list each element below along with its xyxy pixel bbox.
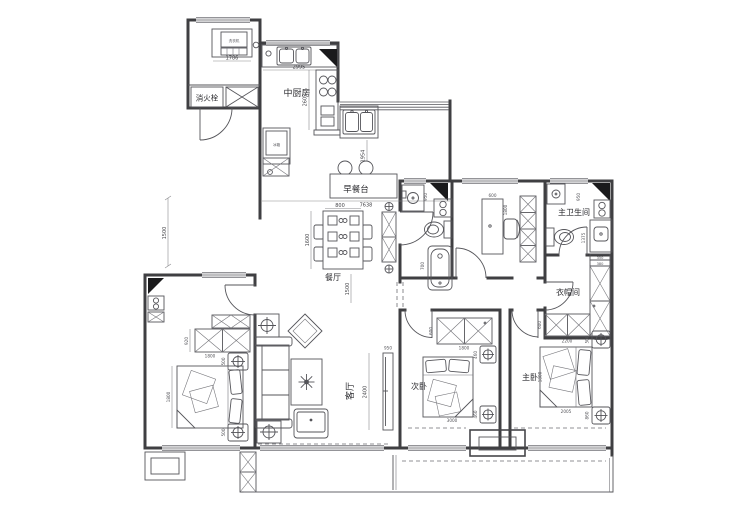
balcony-column [240,452,256,492]
tv-cabinet [383,353,393,430]
left-bedroom: 920 1800 500 1800 500 [148,296,250,441]
living-label: 客厅 [344,382,356,400]
wardrobe-column [590,266,610,336]
dim-master-nightstand-a: 500 [585,335,590,343]
utility-room: 洗衣机 1786 消火栓 [191,29,259,107]
dim-left-offset: 1500 [162,227,168,240]
dim-second-wardrobe-width: 1800 [459,346,470,351]
dim-bath-tub: 700 [420,262,425,270]
dim-left-wardrobe-width: 1800 [205,354,216,359]
dim-left-bed-length: 1800 [166,391,171,402]
floor-lamp [255,314,279,337]
cloakroom-label: 衣帽间 [556,287,580,297]
dim-dining-length: 1600 [305,234,311,247]
window-living-bottom [260,445,384,451]
nightstand [480,406,496,423]
study: 600 1800 [482,193,536,262]
master-bath-label: 主卫生间 [558,207,590,217]
bed [423,357,473,417]
window-master-bedroom-bottom [528,445,606,451]
walls [145,20,612,455]
ac-bay [470,430,525,456]
dim-second-bed-length: 3000 [447,418,458,423]
dim-mbath-vanity: 1375 [581,232,586,243]
bookcase [520,196,536,262]
bathtub [428,246,452,290]
bed [177,366,243,428]
main-balcony [240,455,613,492]
living-room: 950 2400 客厅 [255,282,403,444]
dim-left-nightstand-a: 500 [221,357,226,365]
breakfast-bar: 早餐台 [330,161,397,198]
window-study-top [462,178,518,184]
washing-machine-label: 洗衣机 [229,38,240,43]
nightstand [592,331,610,348]
window-master-bath-top [550,178,588,184]
dim-tv-width: 950 [384,346,392,351]
toilet [425,221,453,238]
left-balcony [145,452,185,480]
dim-left-nightstand-b: 500 [221,428,226,436]
armchair [294,409,328,438]
dim-overall-width: 7638 [360,203,373,209]
dining-room: 800 1600 1500 餐厅 1500 [162,196,396,303]
kitchen: 2995 中厨房 2602 冰箱 [262,45,340,176]
study-door [456,248,486,278]
wardrobe [437,318,492,344]
window-utility-top [196,17,250,23]
dim-second-wardrobe-depth: 600 [429,327,434,335]
cloakroom: 衣帽间 350 380 2200 600 [537,254,610,344]
fridge: 冰箱 [263,128,290,176]
nightstand [228,424,248,441]
marker-master-bath-icon [592,183,610,201]
floor-lamp [257,421,281,443]
dim-master-nightstand-b: 860 [585,411,590,419]
dim-cloak-width: 2200 [562,339,573,344]
dim-master-bed-width: 1800 [538,371,543,382]
desk-chair [504,219,520,239]
side-table-diamond [288,314,322,348]
dim-desk-length: 1800 [503,204,508,215]
entry-door [200,108,232,140]
dim-left-wardrobe-depth: 920 [184,337,189,345]
dim-utility-width: 1786 [226,56,239,62]
plant-icon [299,374,315,390]
wardrobe [195,315,250,352]
dim-bath-fixture: 950 [423,193,428,201]
window-left-bedroom-bottom [162,445,240,451]
nightstand [480,346,496,363]
master-bedroom-door [512,310,538,338]
vanity-sink [590,220,612,252]
breakfast-bar-label: 早餐台 [343,184,369,195]
master-bathroom: 950 主卫生间 1375 [546,184,612,252]
sofa [255,337,292,428]
left-bedroom-door [225,285,255,315]
doors [200,108,587,338]
wardrobe-row [545,314,590,336]
marker-left-bedroom-icon [148,278,164,294]
dim-master-bed-length: 2005 [561,409,572,414]
dim-desk-width: 600 [489,193,497,198]
marker-kitchen-icon [319,49,337,67]
second-bedroom: 600 1800 460 3000 460 次卧 [408,318,496,428]
dim-cloak-depth: 600 [537,321,542,329]
master-bedroom-label: 主卧 [522,372,538,382]
dim-second-nightstand-b: 460 [473,410,478,418]
toilet [546,228,574,246]
dining-label: 餐厅 [325,273,341,282]
marker-bath-icon [430,183,448,201]
coffee-table [291,359,322,405]
dim-cloak-shelf-b: 380 [597,262,605,266]
shoe-cabinet [382,203,396,274]
bay-and-balconies [145,430,613,492]
window-bath-top [404,178,426,184]
master-bedroom: 500 主卧 1800 2005 860 [514,331,610,428]
corner-markers [148,49,610,294]
dim-kitchen-depth: 2602 [303,94,309,107]
window-left-bedroom-top [202,272,246,278]
dim-living-width: 2400 [363,386,369,399]
dim-dining-clearance: 1500 [345,283,351,296]
floor-plan-page: 洗衣机 1786 消火栓 2995 中厨房 2602 [0,0,740,518]
fridge-label: 冰箱 [273,142,281,147]
nightstand [228,353,248,370]
second-bedroom-label: 次卧 [411,381,427,391]
dim-second-nightstand-a: 460 [473,351,478,359]
fire-hydrant-label: 消火栓 [196,93,219,103]
dim-west-kitchen-gap: 1954 [361,150,367,163]
window-second-bedroom-bottom [408,445,466,451]
floor-plan-svg: 洗衣机 1786 消火栓 2995 中厨房 2602 [0,0,740,518]
bed [540,347,592,407]
nightstand [592,407,610,424]
dim-mbath-fixture: 950 [576,193,581,201]
dim-kitchen-counter: 2995 [293,65,306,71]
dim-dining-width: 800 [335,203,345,209]
dim-cloak-shelf-a: 350 [597,256,605,260]
fire-hydrant-cabinet: 消火栓 [191,87,258,107]
